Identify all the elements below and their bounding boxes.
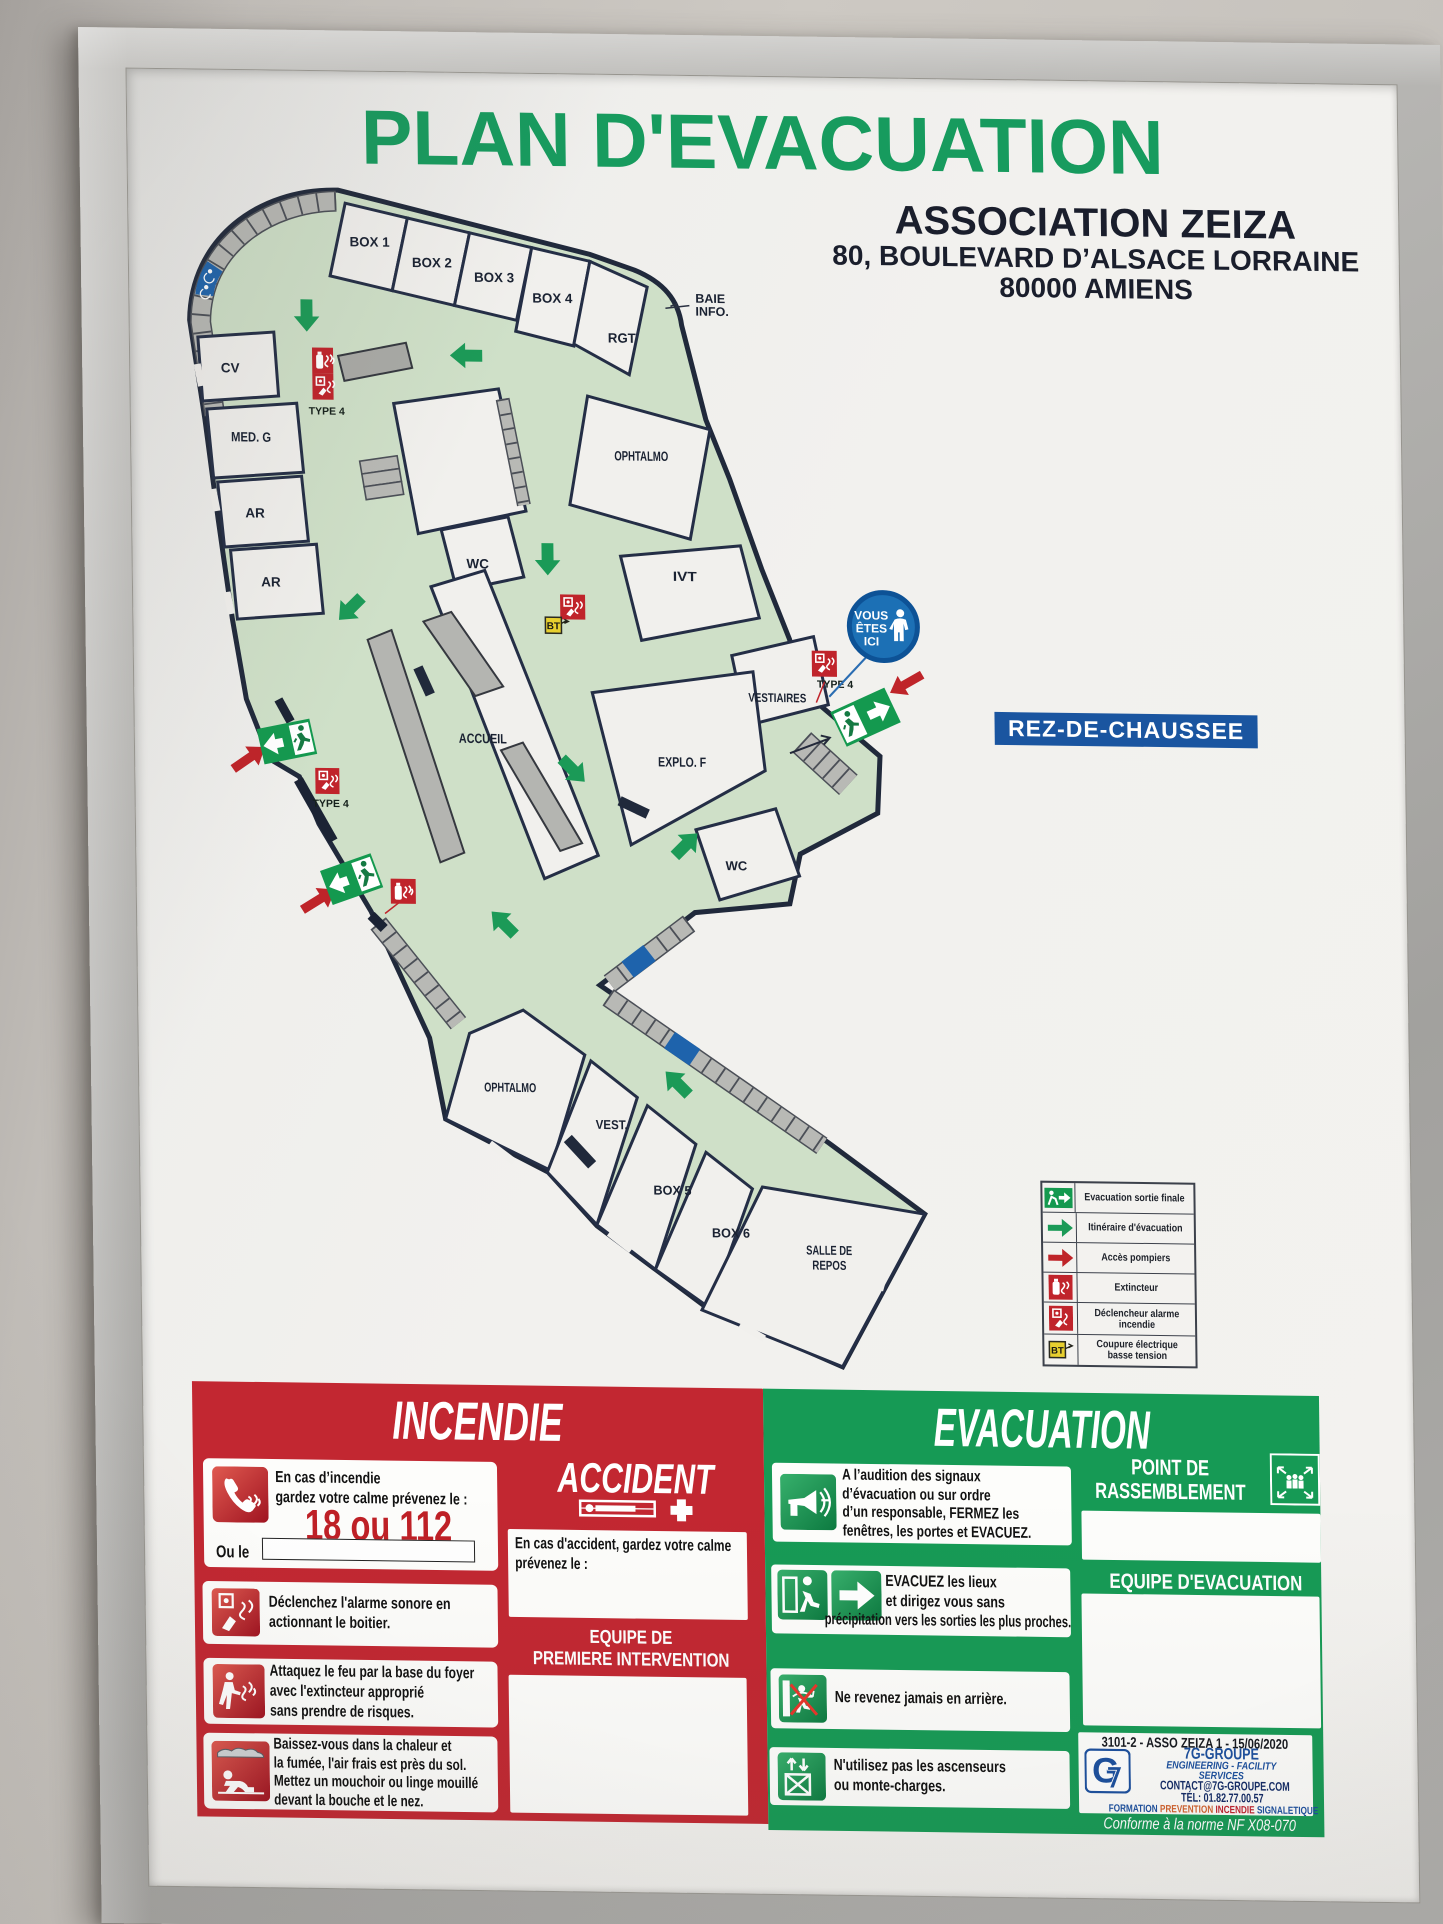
svg-text:SALLE DE: SALLE DE: [806, 1242, 852, 1258]
svg-text:INFO.: INFO.: [695, 305, 728, 319]
svg-text:G: G: [1092, 1751, 1120, 1790]
svg-text:WC: WC: [466, 556, 489, 571]
svg-text:ACCUEIL: ACCUEIL: [459, 731, 507, 747]
svg-text:CV: CV: [221, 360, 240, 375]
svg-text:BOX 5: BOX 5: [653, 1183, 691, 1198]
svg-text:VESTIAIRES: VESTIAIRES: [748, 691, 806, 706]
svg-text:BOX 1: BOX 1: [350, 234, 391, 250]
svg-text:IVT: IVT: [673, 569, 698, 584]
svg-text:OPHTALMO: OPHTALMO: [614, 448, 668, 464]
svg-text:BT: BT: [547, 621, 560, 632]
svg-text:BOX 4: BOX 4: [532, 291, 573, 307]
svg-text:RGT: RGT: [608, 330, 637, 345]
svg-text:OPHTALMO: OPHTALMO: [484, 1080, 536, 1096]
svg-text:VEST.: VEST.: [596, 1117, 628, 1132]
svg-text:REPOS: REPOS: [812, 1258, 846, 1273]
svg-text:MED. G: MED. G: [231, 429, 271, 445]
svg-text:AR: AR: [261, 574, 281, 589]
svg-text:BOX 6: BOX 6: [712, 1225, 750, 1240]
svg-text:AR: AR: [245, 505, 265, 520]
svg-text:TYPE 4: TYPE 4: [313, 799, 349, 810]
svg-text:WC: WC: [725, 858, 747, 873]
svg-text:ICI: ICI: [864, 634, 880, 648]
svg-text:BOX 2: BOX 2: [412, 255, 452, 271]
svg-text:BOX 3: BOX 3: [474, 270, 515, 286]
svg-text:EXPLO. F: EXPLO. F: [658, 754, 706, 770]
svg-text:TYPE 4: TYPE 4: [309, 406, 345, 417]
svg-text:BT: BT: [1051, 1346, 1064, 1357]
svg-text:ÊTES: ÊTES: [856, 620, 888, 635]
